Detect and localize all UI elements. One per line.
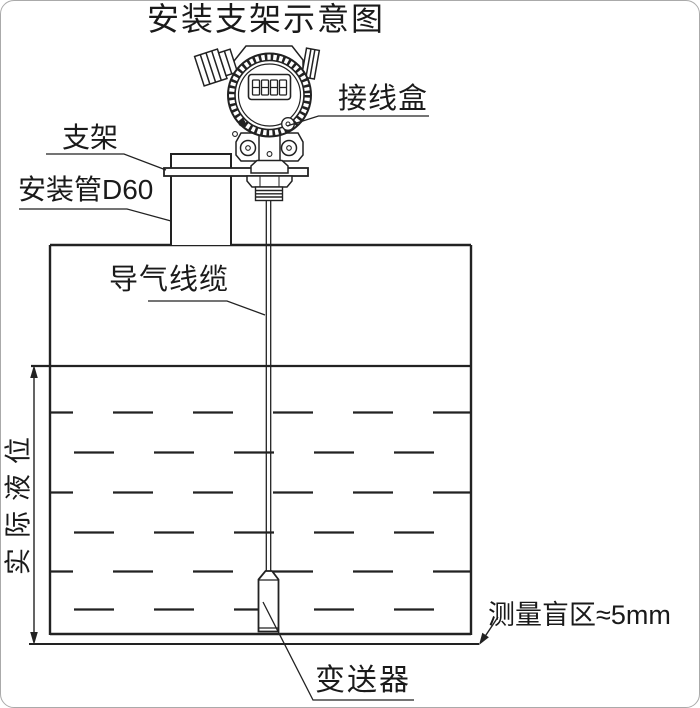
yoke-ear-left [241, 141, 256, 156]
label-junction-box: 接线盒 [338, 85, 428, 114]
probe-transmitter [259, 571, 279, 632]
label-transmitter: 变送器 [315, 666, 411, 696]
bracket-leader [46, 154, 166, 170]
mounting-nut [247, 161, 292, 188]
face-screw-icon [238, 119, 245, 126]
yoke-ear-right [282, 141, 297, 156]
face-pin-icon [233, 132, 238, 137]
threaded-stub [256, 187, 283, 201]
liquid [31, 366, 471, 610]
air-cable-line [266, 201, 270, 572]
transmitter-head [195, 45, 320, 161]
junction-box-leader [287, 116, 429, 126]
label-actual-level: 实际液位 [6, 427, 33, 575]
arrowhead-icon [479, 633, 489, 645]
label-blind-zone: 测量盲区≈5mm [488, 602, 671, 629]
lcd-display [249, 75, 291, 100]
mounting-pipe-leader [19, 209, 171, 221]
tank [29, 245, 479, 644]
air-cable-leader [148, 301, 265, 315]
diagram-title: 安装支架示意图 [147, 3, 385, 35]
label-bracket: 支架 [62, 124, 118, 152]
label-air-cable: 导气线缆 [109, 266, 229, 295]
label-mounting-pipe: 安装管D60 [18, 176, 153, 204]
diagram-page: 安装支架示意图 接线盒 支架 安装管D60 导气线缆 实际液位 测量盲区≈5mm… [0, 0, 700, 708]
